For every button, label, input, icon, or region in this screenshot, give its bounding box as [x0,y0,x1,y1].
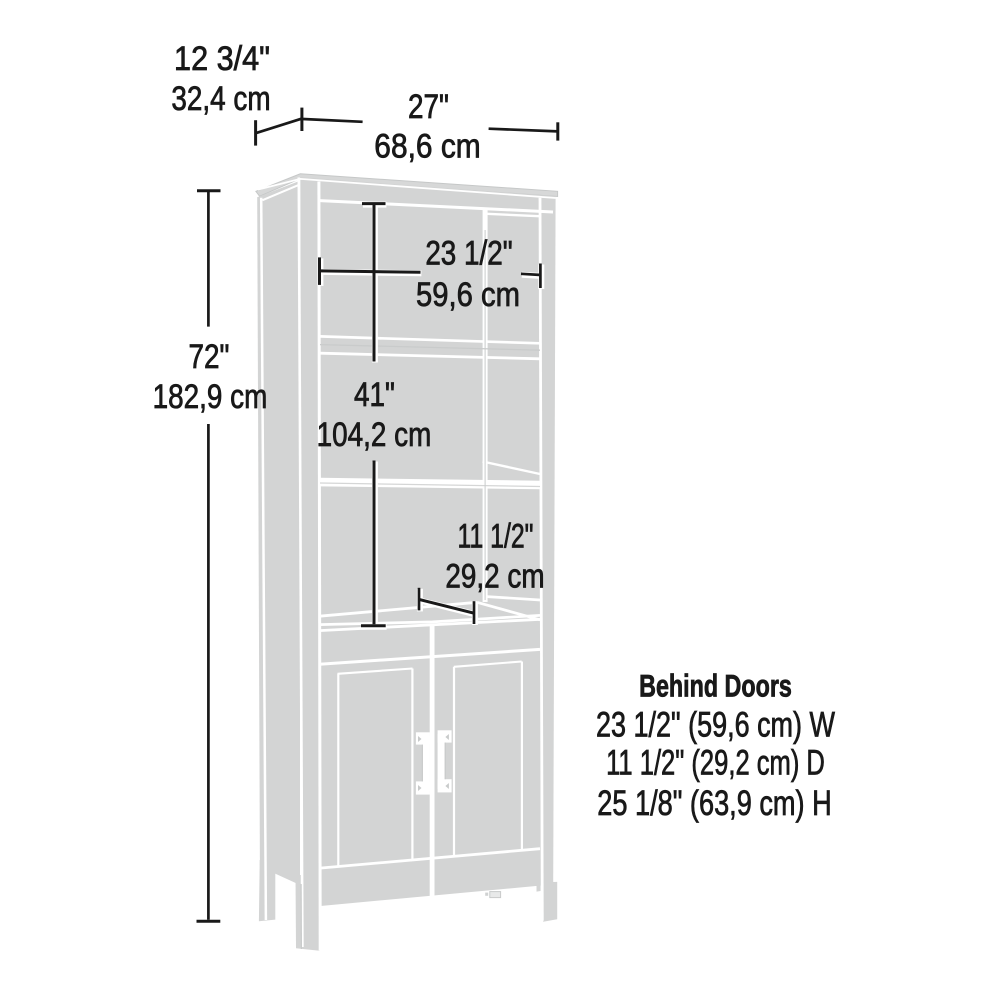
svg-text:25 1/8" (63,9 cm) H: 25 1/8" (63,9 cm) H [597,782,831,822]
svg-text:41": 41" [354,375,395,413]
svg-text:32,4 cm: 32,4 cm [171,79,270,117]
svg-text:27": 27" [408,87,449,125]
svg-text:11 1/2" (29,2 cm) D: 11 1/2" (29,2 cm) D [606,742,825,782]
svg-text:68,6 cm: 68,6 cm [374,127,480,165]
svg-text:182,9 cm: 182,9 cm [153,377,268,415]
svg-text:29,2 cm: 29,2 cm [445,557,544,595]
svg-text:104,2 cm: 104,2 cm [317,415,432,453]
svg-text:72": 72" [189,337,230,375]
svg-text:23 1/2" (59,6 cm) W: 23 1/2" (59,6 cm) W [596,704,835,745]
svg-text:11 1/2": 11 1/2" [458,518,534,556]
svg-text:59,6 cm: 59,6 cm [416,275,520,314]
svg-text:23 1/2": 23 1/2" [425,234,512,272]
svg-text:Behind Doors: Behind Doors [639,668,792,703]
svg-text:12 3/4": 12 3/4" [174,40,270,78]
